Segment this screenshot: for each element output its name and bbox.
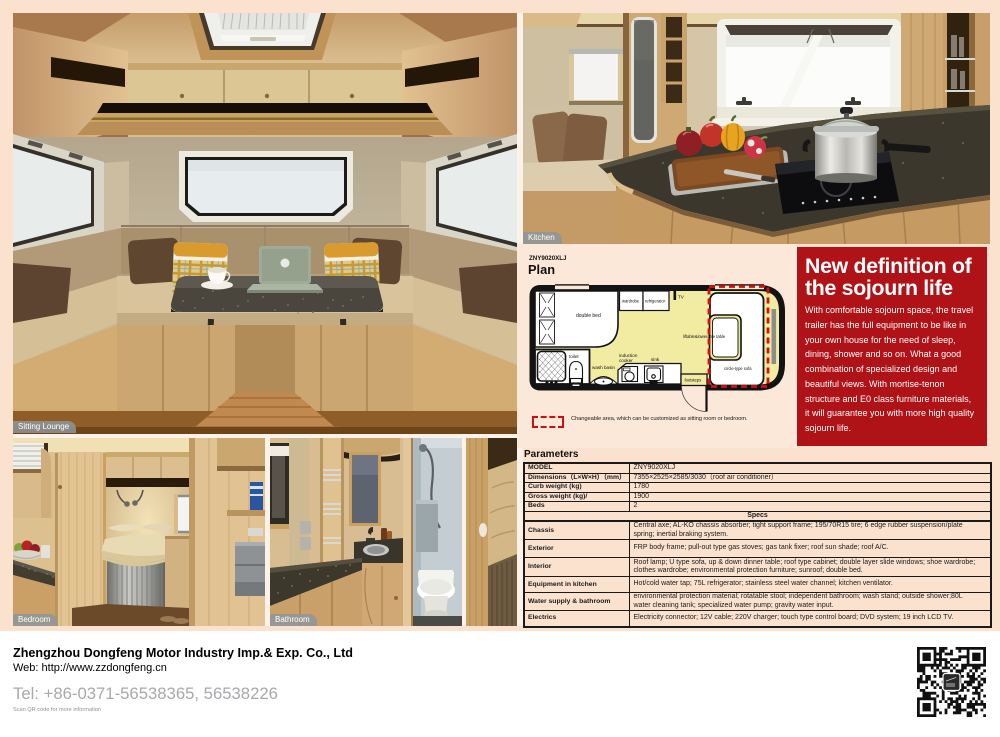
svg-text:cooker: cooker [619,358,633,363]
svg-text:refrigerator: refrigerator [645,299,666,304]
svg-text:liftable&lowerable table: liftable&lowerable table [683,334,726,339]
svg-text:wash basin: wash basin [592,365,615,370]
svg-text:double bed: double bed [576,313,601,319]
svg-text:footsteps: footsteps [685,378,702,383]
svg-text:TV: TV [678,295,685,300]
svg-text:toilet: toilet [569,354,579,359]
svg-text:circle-type sofa: circle-type sofa [724,366,752,371]
svg-text:wardrobe: wardrobe [622,299,640,304]
svg-text:sink: sink [651,357,660,362]
